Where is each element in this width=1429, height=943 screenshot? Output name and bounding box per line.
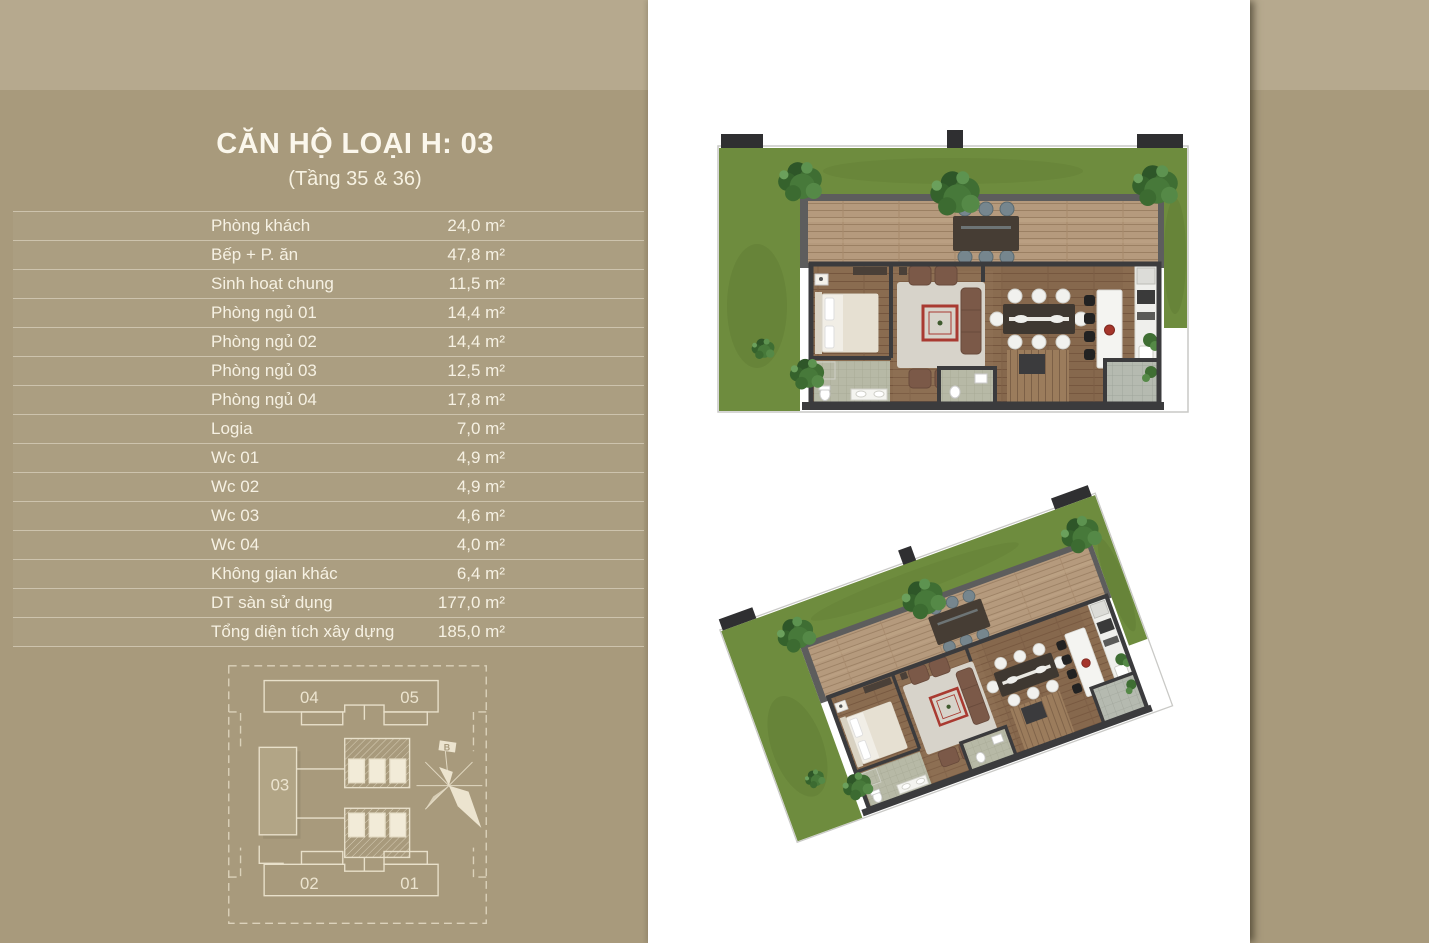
room-area: 17,8 m² [447,390,644,410]
room-area: 14,4 m² [447,332,644,352]
unit-label-05: 05 [400,688,419,707]
unit-label-04: 04 [300,688,319,707]
unit-label-02: 02 [300,874,319,893]
table-row: DT sàn sử dụng177,0 m² [13,588,644,617]
room-area: 4,0 m² [457,535,644,555]
table-row: Wc 024,9 m² [13,472,644,501]
unit-label-03: 03 [271,776,290,795]
compass-icon: B [416,740,482,828]
room-label: Không gian khác [13,564,338,584]
plan-upper-render [718,130,1188,412]
render-panel [648,0,1250,943]
unit-03-block [259,747,345,863]
room-label: Phòng khách [13,216,310,236]
table-row: Phòng ngủ 0312,5 m² [13,356,644,385]
table-row: Phòng ngủ 0114,4 m² [13,298,644,327]
table-row: Bếp + P. ăn47,8 m² [13,240,644,269]
room-area: 7,0 m² [457,419,644,439]
room-label: Tổng diện tích xây dựng [13,622,394,642]
room-area: 14,4 m² [447,303,644,323]
room-area: 4,9 m² [457,477,644,497]
room-label: Phòng ngủ 02 [13,332,317,352]
floor-plan-upper [703,106,1203,426]
room-label: Wc 04 [13,535,259,555]
room-label: Phòng ngủ 01 [13,303,317,323]
table-row: Phòng ngủ 0214,4 m² [13,327,644,356]
plan-lower-render [715,480,1172,842]
room-area: 11,5 m² [449,274,644,294]
brochure-page: CĂN HỘ LOẠI H: 03 (Tầng 35 & 36) Phòng k… [0,0,1429,943]
room-area: 6,4 m² [457,564,644,584]
room-label: Sinh hoạt chung [13,274,334,294]
room-label: Bếp + P. ăn [13,245,298,265]
table-row: Wc 044,0 m² [13,530,644,559]
table-row: Wc 014,9 m² [13,443,644,472]
unit-label-01: 01 [400,874,419,893]
table-row: Tổng diện tích xây dựng185,0 m² [13,617,644,647]
room-label: Logia [13,419,253,439]
room-area: 24,0 m² [447,216,644,236]
core-upper [345,739,410,788]
page-subtitle: (Tầng 35 & 36) [62,168,648,191]
keyplan: B 04 05 03 02 01 [215,653,500,938]
table-row: Wc 034,6 m² [13,501,644,530]
table-row: Logia7,0 m² [13,414,644,443]
room-area: 177,0 m² [438,593,644,613]
table-row: Không gian khác6,4 m² [13,559,644,588]
keyplan-svg: B 04 05 03 02 01 [215,653,500,938]
room-label: Wc 03 [13,506,259,526]
spec-panel: CĂN HỘ LOẠI H: 03 (Tầng 35 & 36) Phòng k… [0,0,648,943]
room-label: Wc 02 [13,477,259,497]
room-area: 12,5 m² [447,361,644,381]
area-table: Phòng khách24,0 m² Bếp + P. ăn47,8 m² Si… [13,211,644,647]
core-lower [345,808,410,857]
room-label: Wc 01 [13,448,259,468]
title-block: CĂN HỘ LOẠI H: 03 (Tầng 35 & 36) [0,128,648,191]
table-row: Phòng khách24,0 m² [13,211,644,240]
table-row: Phòng ngủ 0417,8 m² [13,385,644,414]
compass-north-label: B [444,742,450,752]
room-area: 185,0 m² [438,622,644,642]
page-title: CĂN HỘ LOẠI H: 03 [62,128,648,161]
floor-plan-lower [673,443,1213,875]
room-label: Phòng ngủ 04 [13,390,317,410]
room-area: 4,9 m² [457,448,644,468]
room-area: 4,6 m² [457,506,644,526]
room-label: DT sàn sử dụng [13,593,333,613]
table-row: Sinh hoạt chung11,5 m² [13,269,644,298]
room-label: Phòng ngủ 03 [13,361,317,381]
room-area: 47,8 m² [447,245,644,265]
